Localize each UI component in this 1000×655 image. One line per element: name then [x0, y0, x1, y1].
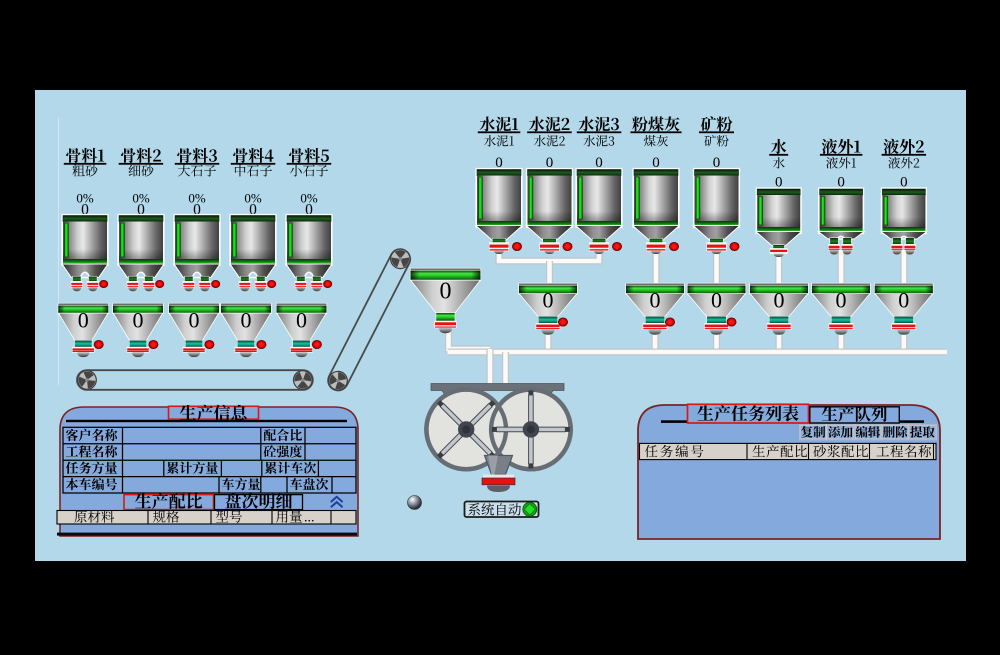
svg-text:0: 0 — [440, 279, 452, 305]
svg-text:0: 0 — [133, 308, 144, 333]
svg-text:0: 0 — [241, 308, 252, 333]
svg-text:0: 0 — [78, 308, 89, 333]
svg-text:0: 0 — [296, 308, 307, 333]
svg-text:0: 0 — [189, 308, 200, 333]
svg-text:0: 0 — [898, 288, 909, 313]
svg-text:0: 0 — [711, 288, 722, 313]
svg-text:0: 0 — [543, 288, 554, 313]
svg-text:0: 0 — [774, 288, 785, 313]
svg-text:...: ... — [304, 511, 315, 526]
svg-text:0: 0 — [650, 288, 661, 313]
svg-text:0: 0 — [836, 288, 847, 313]
